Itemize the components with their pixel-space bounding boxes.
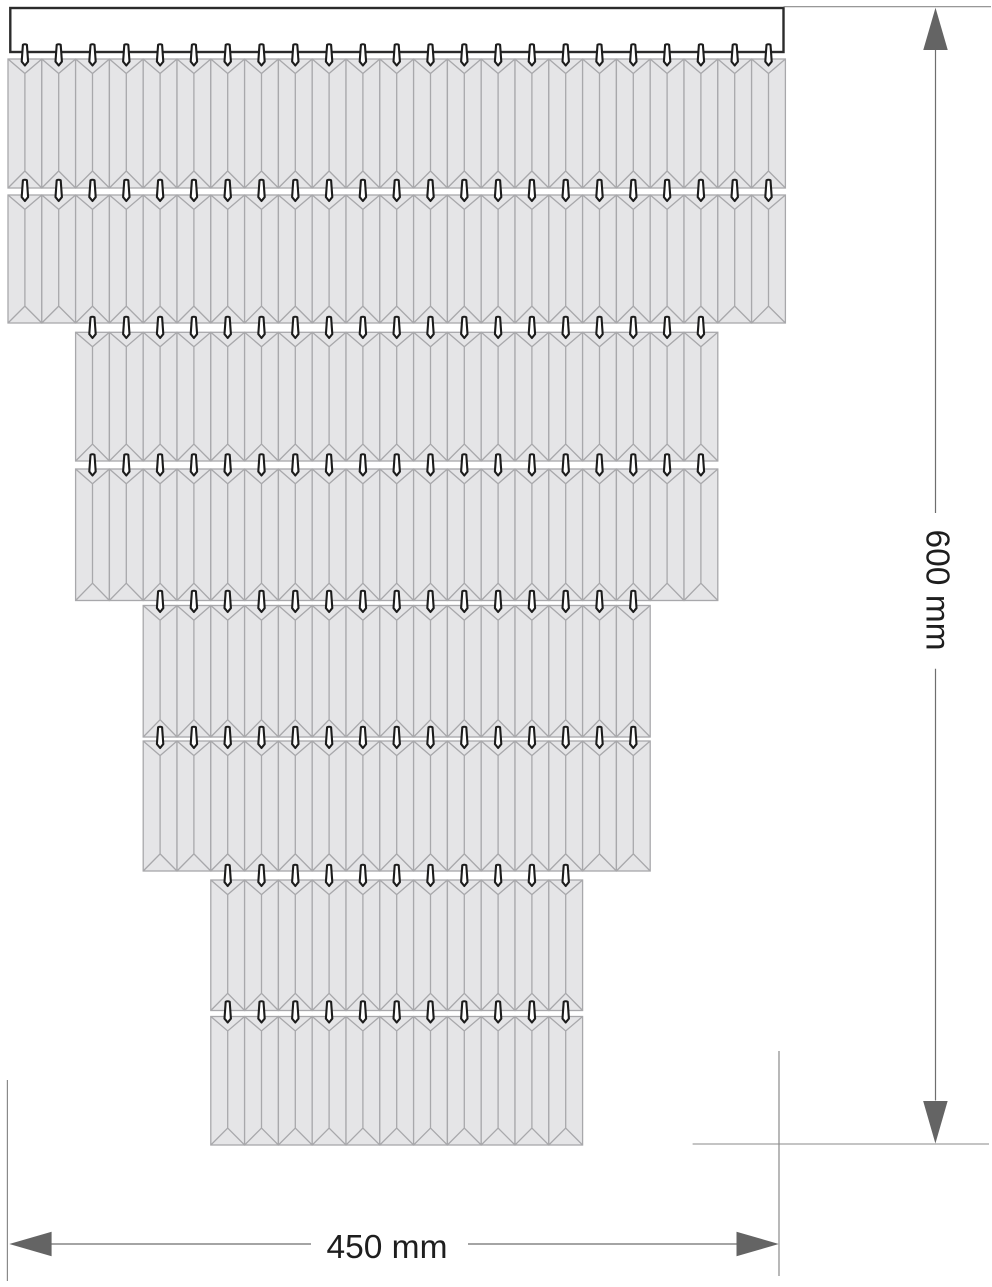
svg-text:450 mm: 450 mm bbox=[326, 1229, 447, 1266]
svg-text:600 mm: 600 mm bbox=[919, 529, 956, 650]
